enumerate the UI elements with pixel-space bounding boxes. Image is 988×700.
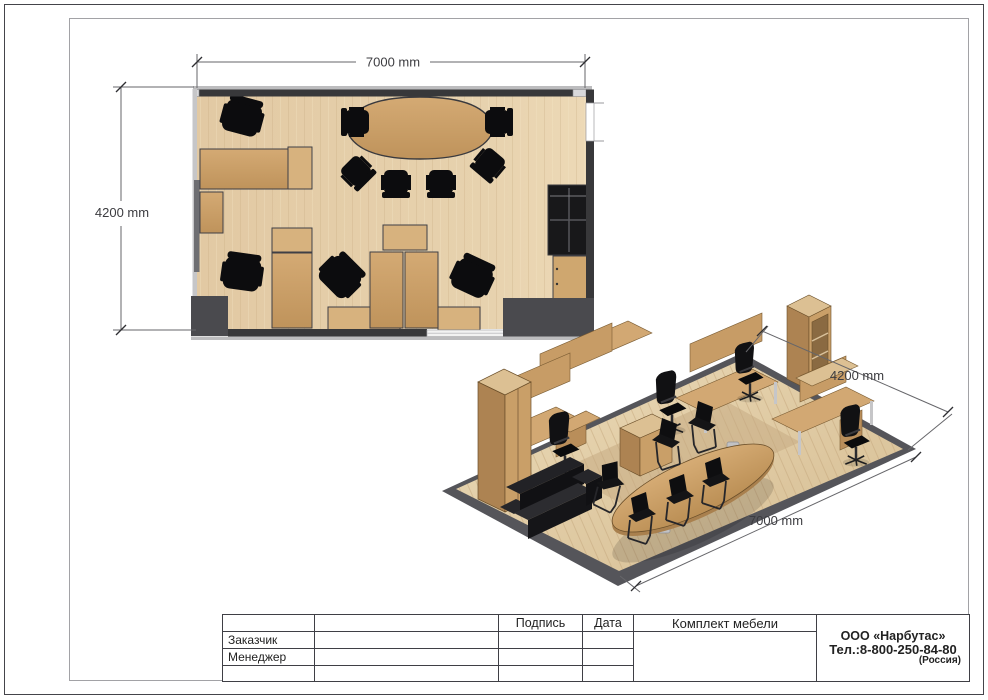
title-block-empty-cell bbox=[223, 615, 315, 632]
title-block-empty-cell bbox=[223, 666, 315, 681]
customer-name-field bbox=[315, 632, 499, 649]
iso-depth-dimension-label: 4200 mm bbox=[830, 368, 884, 383]
title-block-empty-cell bbox=[315, 615, 499, 632]
title-block: Подпись Дата Комплект мебели Заказчик Ме… bbox=[222, 614, 970, 682]
isometric-view: 4200 mm 7000 mm bbox=[430, 280, 975, 605]
company-country: (Россия) bbox=[919, 656, 965, 666]
title-block-empty-cell bbox=[499, 666, 583, 681]
plan-bookcase bbox=[548, 185, 591, 255]
manager-row-label: Менеджер bbox=[223, 649, 315, 666]
title-block-empty-cell bbox=[583, 666, 634, 681]
manager-name-field bbox=[315, 649, 499, 666]
company-name: ООО «Нарбутас» bbox=[841, 630, 946, 643]
date-column-header: Дата bbox=[583, 615, 634, 632]
plan-height-dimension-label: 4200 mm bbox=[95, 205, 149, 220]
company-info: ООО «Нарбутас» Тел.:8-800-250-84-80 (Рос… bbox=[817, 615, 969, 681]
project-title: Комплект мебели bbox=[634, 615, 817, 632]
project-notes-field bbox=[634, 632, 817, 681]
manager-date-field bbox=[583, 649, 634, 666]
customer-row-label: Заказчик bbox=[223, 632, 315, 649]
customer-signature-field bbox=[499, 632, 583, 649]
signature-column-header: Подпись bbox=[499, 615, 583, 632]
customer-date-field bbox=[583, 632, 634, 649]
drawing-page: 7000 mm 4200 mm bbox=[0, 0, 988, 700]
iso-width-dimension-label: 7000 mm bbox=[749, 513, 803, 528]
manager-signature-field bbox=[499, 649, 583, 666]
title-block-empty-cell bbox=[315, 666, 499, 681]
plan-width-dimension-label: 7000 mm bbox=[366, 55, 420, 70]
